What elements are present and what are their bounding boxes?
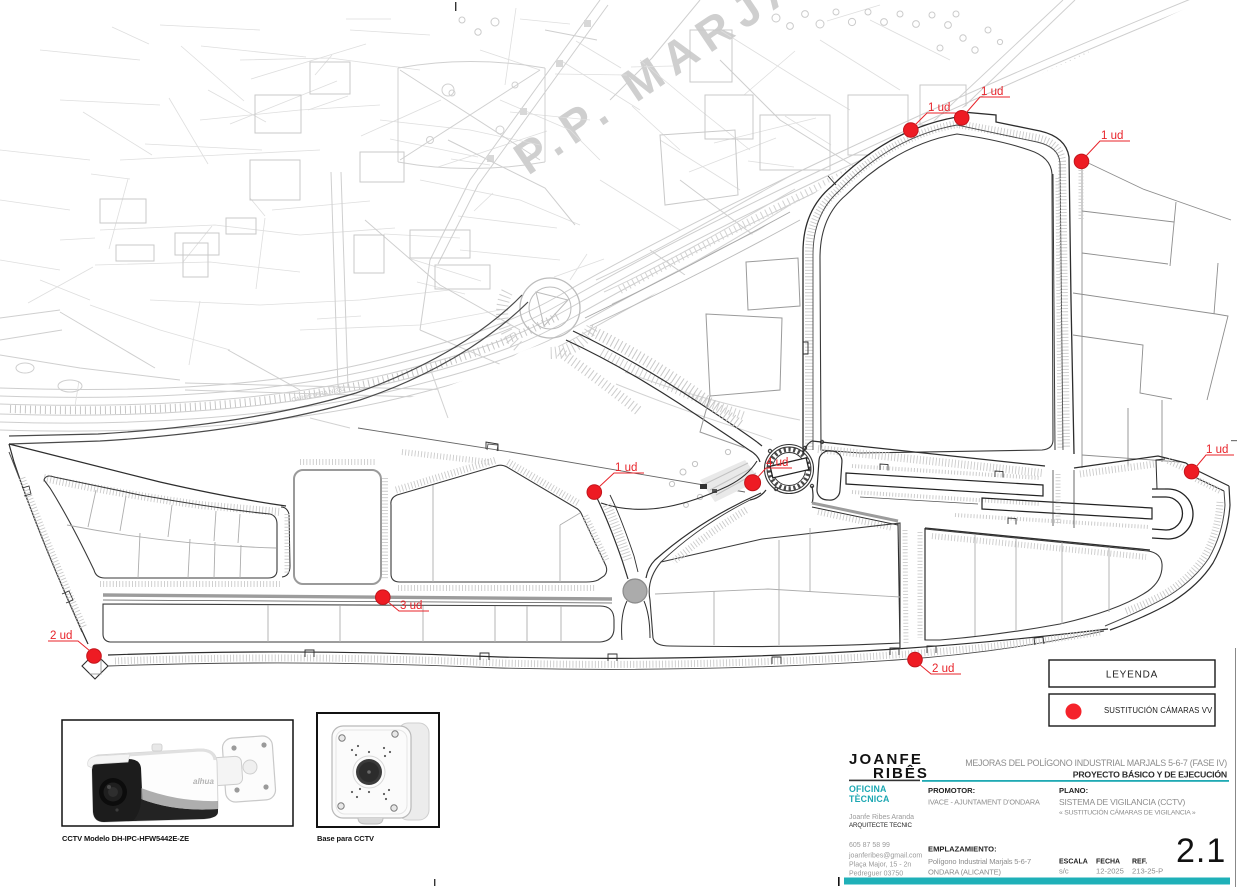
svg-text:ESCALA: ESCALA [1059, 859, 1088, 866]
svg-text:1 ud: 1 ud [615, 462, 637, 474]
svg-text:P.P. MARJAL: P.P. MARJAL [505, 0, 843, 184]
svg-text:12-2025: 12-2025 [1096, 867, 1124, 876]
svg-text:1 ud: 1 ud [1206, 444, 1228, 456]
svg-text:Pedreguer 03750: Pedreguer 03750 [849, 871, 903, 878]
svg-text:PLANO:: PLANO: [1059, 786, 1088, 795]
svg-text:Base para CCTV: Base para CCTV [317, 834, 374, 843]
svg-text:SISTEMA DE VIGILANCIA (CCTV): SISTEMA DE VIGILANCIA (CCTV) [1059, 797, 1186, 807]
svg-text:Plaça Major, 15 - 2n: Plaça Major, 15 - 2n [849, 862, 911, 869]
svg-text:PROMOTOR:: PROMOTOR: [928, 786, 975, 795]
svg-text:Joanfe Ribes Aranda: Joanfe Ribes Aranda [849, 814, 914, 821]
svg-text:2.1: 2.1 [1176, 832, 1226, 870]
svg-text:OFICINA: OFICINA [849, 784, 887, 794]
svg-text:TÈCNICA: TÈCNICA [849, 794, 890, 804]
svg-text:3 ud: 3 ud [400, 600, 422, 612]
svg-text:Polígono Industrial Marjals 5-: Polígono Industrial Marjals 5-6-7 [928, 857, 1031, 866]
svg-text:LEYENDA: LEYENDA [1106, 670, 1158, 681]
svg-text:alhua: alhua [193, 777, 214, 786]
svg-text:4 ud: 4 ud [766, 457, 788, 469]
svg-text:ARQUITECTE TECNIC: ARQUITECTE TECNIC [849, 822, 912, 829]
svg-text:2 ud: 2 ud [932, 663, 954, 675]
svg-text:CCTV Modelo DH-IPC-HFW5442E-ZE: CCTV Modelo DH-IPC-HFW5442E-ZE [62, 834, 189, 843]
svg-text:IVACE - AJUNTAMENT D'ONDARA: IVACE - AJUNTAMENT D'ONDARA [928, 798, 1040, 807]
svg-text:1 ud: 1 ud [981, 86, 1003, 98]
svg-text:213-25-P: 213-25-P [1132, 867, 1163, 876]
svg-text:2 ud: 2 ud [50, 630, 72, 642]
svg-text:REF.: REF. [1132, 859, 1147, 866]
svg-text:ONDARA (ALICANTE): ONDARA (ALICANTE) [928, 868, 1002, 877]
svg-text:1 ud: 1 ud [928, 102, 950, 114]
svg-text:« SUSTITUCIÓN CÁMARAS DE VIGIL: « SUSTITUCIÓN CÁMARAS DE VIGILANCIA » [1059, 808, 1196, 817]
svg-text:PROYECTO BÁSICO Y DE EJECUCIÓN: PROYECTO BÁSICO Y DE EJECUCIÓN [1073, 769, 1227, 780]
svg-text:RIBÊS: RIBÊS [873, 764, 929, 782]
svg-text:FECHA: FECHA [1096, 859, 1120, 866]
svg-text:EMPLAZAMIENTO:: EMPLAZAMIENTO: [928, 845, 997, 854]
svg-text:s/c: s/c [1059, 867, 1069, 876]
svg-text:MEJORAS DEL POLÍGONO INDUSTRIA: MEJORAS DEL POLÍGONO INDUSTRIAL MARJALS … [965, 758, 1227, 768]
svg-text:joanferibes@gmail.com: joanferibes@gmail.com [848, 853, 922, 860]
svg-text:1 ud: 1 ud [1101, 130, 1123, 142]
svg-text:605 87 58 99: 605 87 58 99 [849, 842, 890, 849]
svg-text:SUSTITUCIÓN CÁMARAS VV: SUSTITUCIÓN CÁMARAS VV [1104, 706, 1213, 715]
